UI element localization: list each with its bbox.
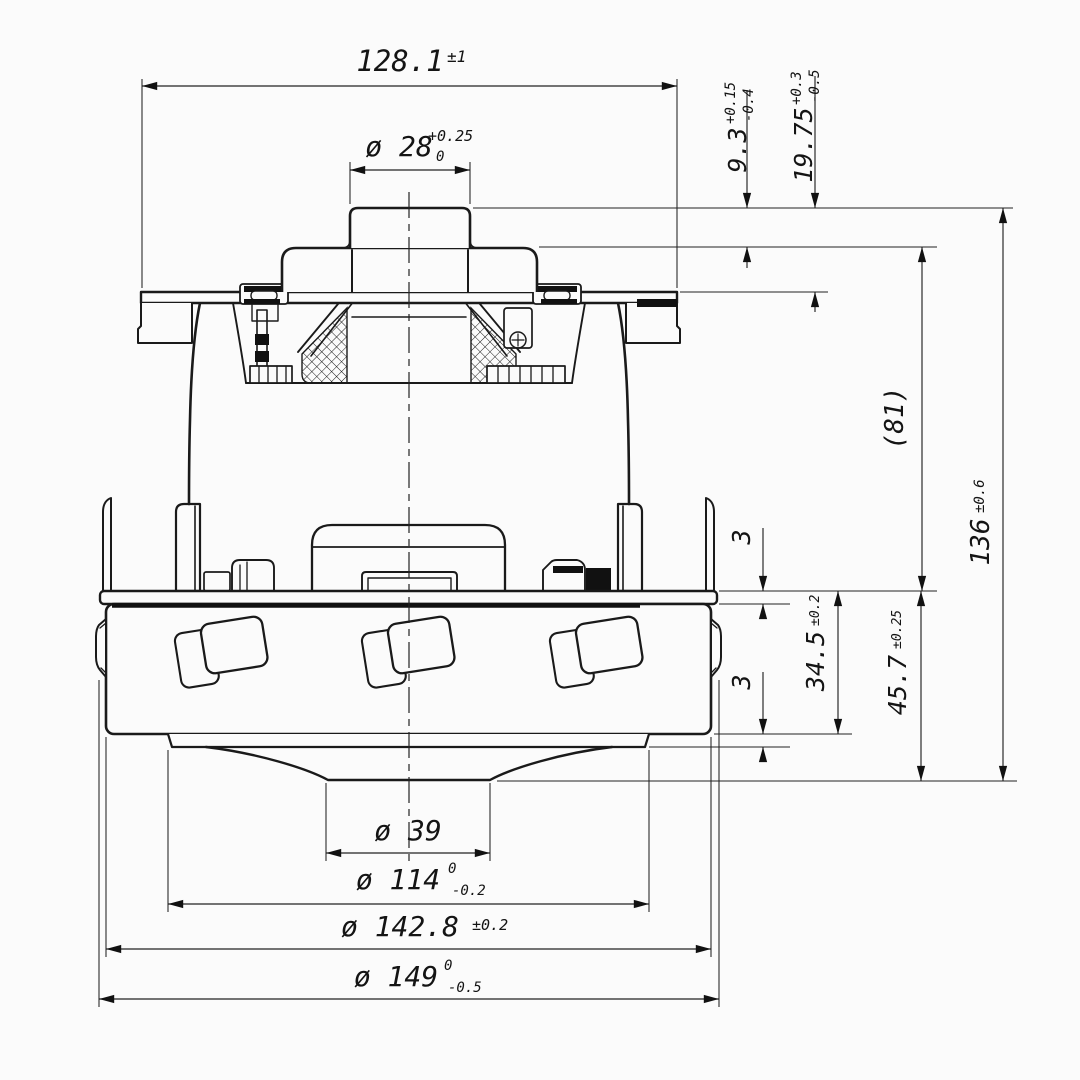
dim-lower-section-value: 45.7 [883,655,912,715]
left-comb-terminal [250,366,292,383]
left-rim-strip [103,498,111,591]
dim-dia-outer-value: ø 149 [354,960,438,993]
flange-right-lip [626,303,680,343]
dim-dia-drum-value: ø 142.8 [341,910,459,943]
right-bracket-arm-inner [572,303,585,383]
dim-drum-height: 34.5 ±0.2 [801,591,838,734]
drawing-canvas: 128.1 ±1 ø 28 +0.25 0 9.3 +0.15 -0.4 19. [0,0,1080,1080]
motor-outline [96,192,721,862]
dimensions: 128.1 ±1 ø 28 +0.25 0 9.3 +0.15 -0.4 19. [99,44,1017,1007]
dim-neck-height-tol-lower: -0.5 [807,69,823,103]
dim-flange-width-tol: ±1 [447,47,466,66]
dim-lip-thickness-value: 3 [727,674,756,690]
right-rim-strip [706,498,714,591]
flange-left-lip [138,303,192,343]
right-terminal-screw [504,308,532,348]
left-terminal-screw [252,303,278,370]
dim-dia-drum-tol: ±0.2 [472,916,508,934]
dim-boss-height-value: 9.3 [723,127,752,172]
technical-drawing: 128.1 ±1 ø 28 +0.25 0 9.3 +0.15 -0.4 19. [0,0,1080,1080]
flange-right-dark-bar [637,299,677,307]
dim-dia-ring-value: ø 114 [356,863,440,896]
inlet-boss [350,208,470,248]
dim-plate-thickness-value: 3 [727,529,756,545]
dim-plate-thickness: 3 [727,528,763,619]
dim-overall-height-tol: ±0.6 [972,479,988,513]
dim-boss-height-tol-lower: -0.4 [741,88,757,122]
dim-lower-section-tol: ±0.25 [890,610,905,649]
dim-neck-height-value: 19.75 [789,107,818,182]
dim-drum-height-value: 34.5 [801,631,830,692]
left-bracket-arm-inner [233,303,246,383]
dim-body-height-ref-value: (81) [880,387,910,450]
dim-neck-height-tol-upper: +0.3 [789,71,805,105]
dim-lower-section: 45.7 ±0.25 [883,591,921,781]
dim-overall-height: 136 ±0.6 [966,208,1003,781]
dim-overall-height-value: 136 [966,519,996,566]
dim-lip-thickness: 3 [727,672,763,762]
dim-dia-hub: ø 39 [326,814,490,853]
right-comb-terminal [487,366,565,383]
right-foot [618,504,642,591]
dim-bore-tol-upper: +0.25 [428,127,473,145]
left-plate-tabs [204,560,274,591]
left-foot [176,504,200,591]
dim-dia-outer-tol-upper: 0 [444,958,452,974]
dim-drum-height-tol: ±0.2 [808,595,823,626]
dim-neck-height: 19.75 +0.3 -0.5 [789,69,823,312]
dim-flange-width-value: 128.1 [356,44,443,78]
right-plate-tabs [543,560,611,591]
dim-boss-height-tol-upper: +0.15 [723,82,739,124]
dim-dia-drum: ø 142.8 ±0.2 [106,910,711,949]
right-black-block [586,568,611,591]
dim-dia-ring: ø 114 0 -0.2 [168,861,649,904]
dim-bore: ø 28 +0.25 0 [350,127,473,170]
dim-dia-outer-tol-lower: -0.5 [448,980,482,996]
dim-body-height-ref: (81) [880,247,922,591]
dim-dia-ring-tol-lower: -0.2 [452,883,486,899]
dim-bore-value: ø 28 [365,130,432,163]
dim-bore-tol-lower: 0 [436,149,444,165]
dim-dia-hub-value: ø 39 [374,814,441,847]
dim-dia-ring-tol-upper: 0 [448,861,456,877]
dim-dia-outer: ø 149 0 -0.5 [99,958,719,999]
dim-flange-width: 128.1 ±1 [142,44,677,86]
dim-boss-height: 9.3 +0.15 -0.4 [723,82,757,268]
right-clamp-tab [533,284,581,304]
